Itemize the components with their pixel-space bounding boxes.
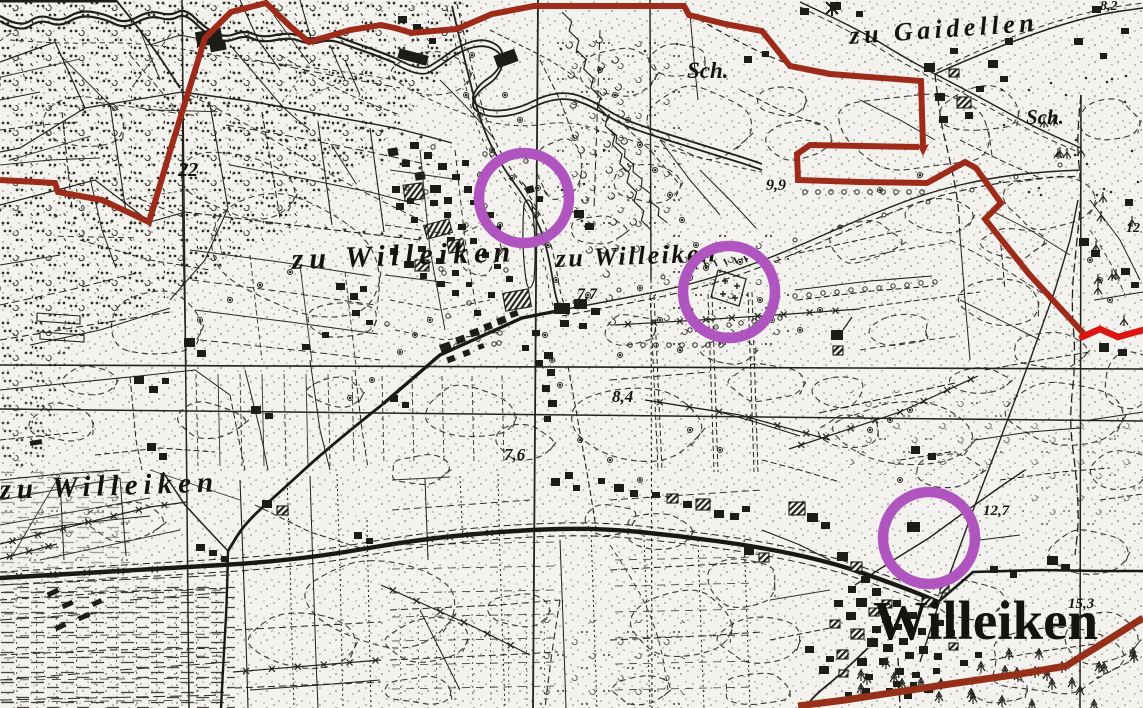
- svg-text:22: 22: [177, 159, 198, 181]
- svg-text:7,6: 7,6: [504, 445, 526, 464]
- svg-text:Sch.: Sch.: [687, 58, 729, 83]
- svg-text:8,4: 8,4: [612, 387, 633, 406]
- svg-text:7,7: 7,7: [577, 286, 598, 303]
- svg-text:9,9: 9,9: [766, 177, 786, 194]
- svg-text:12: 12: [1126, 221, 1140, 236]
- svg-text:8,2: 8,2: [1100, 0, 1118, 14]
- svg-text:Willeiken: Willeiken: [873, 590, 1098, 651]
- svg-text:12,7: 12,7: [983, 503, 1010, 519]
- svg-text:15,3: 15,3: [1068, 596, 1095, 612]
- svg-text:Sch.: Sch.: [1026, 105, 1064, 129]
